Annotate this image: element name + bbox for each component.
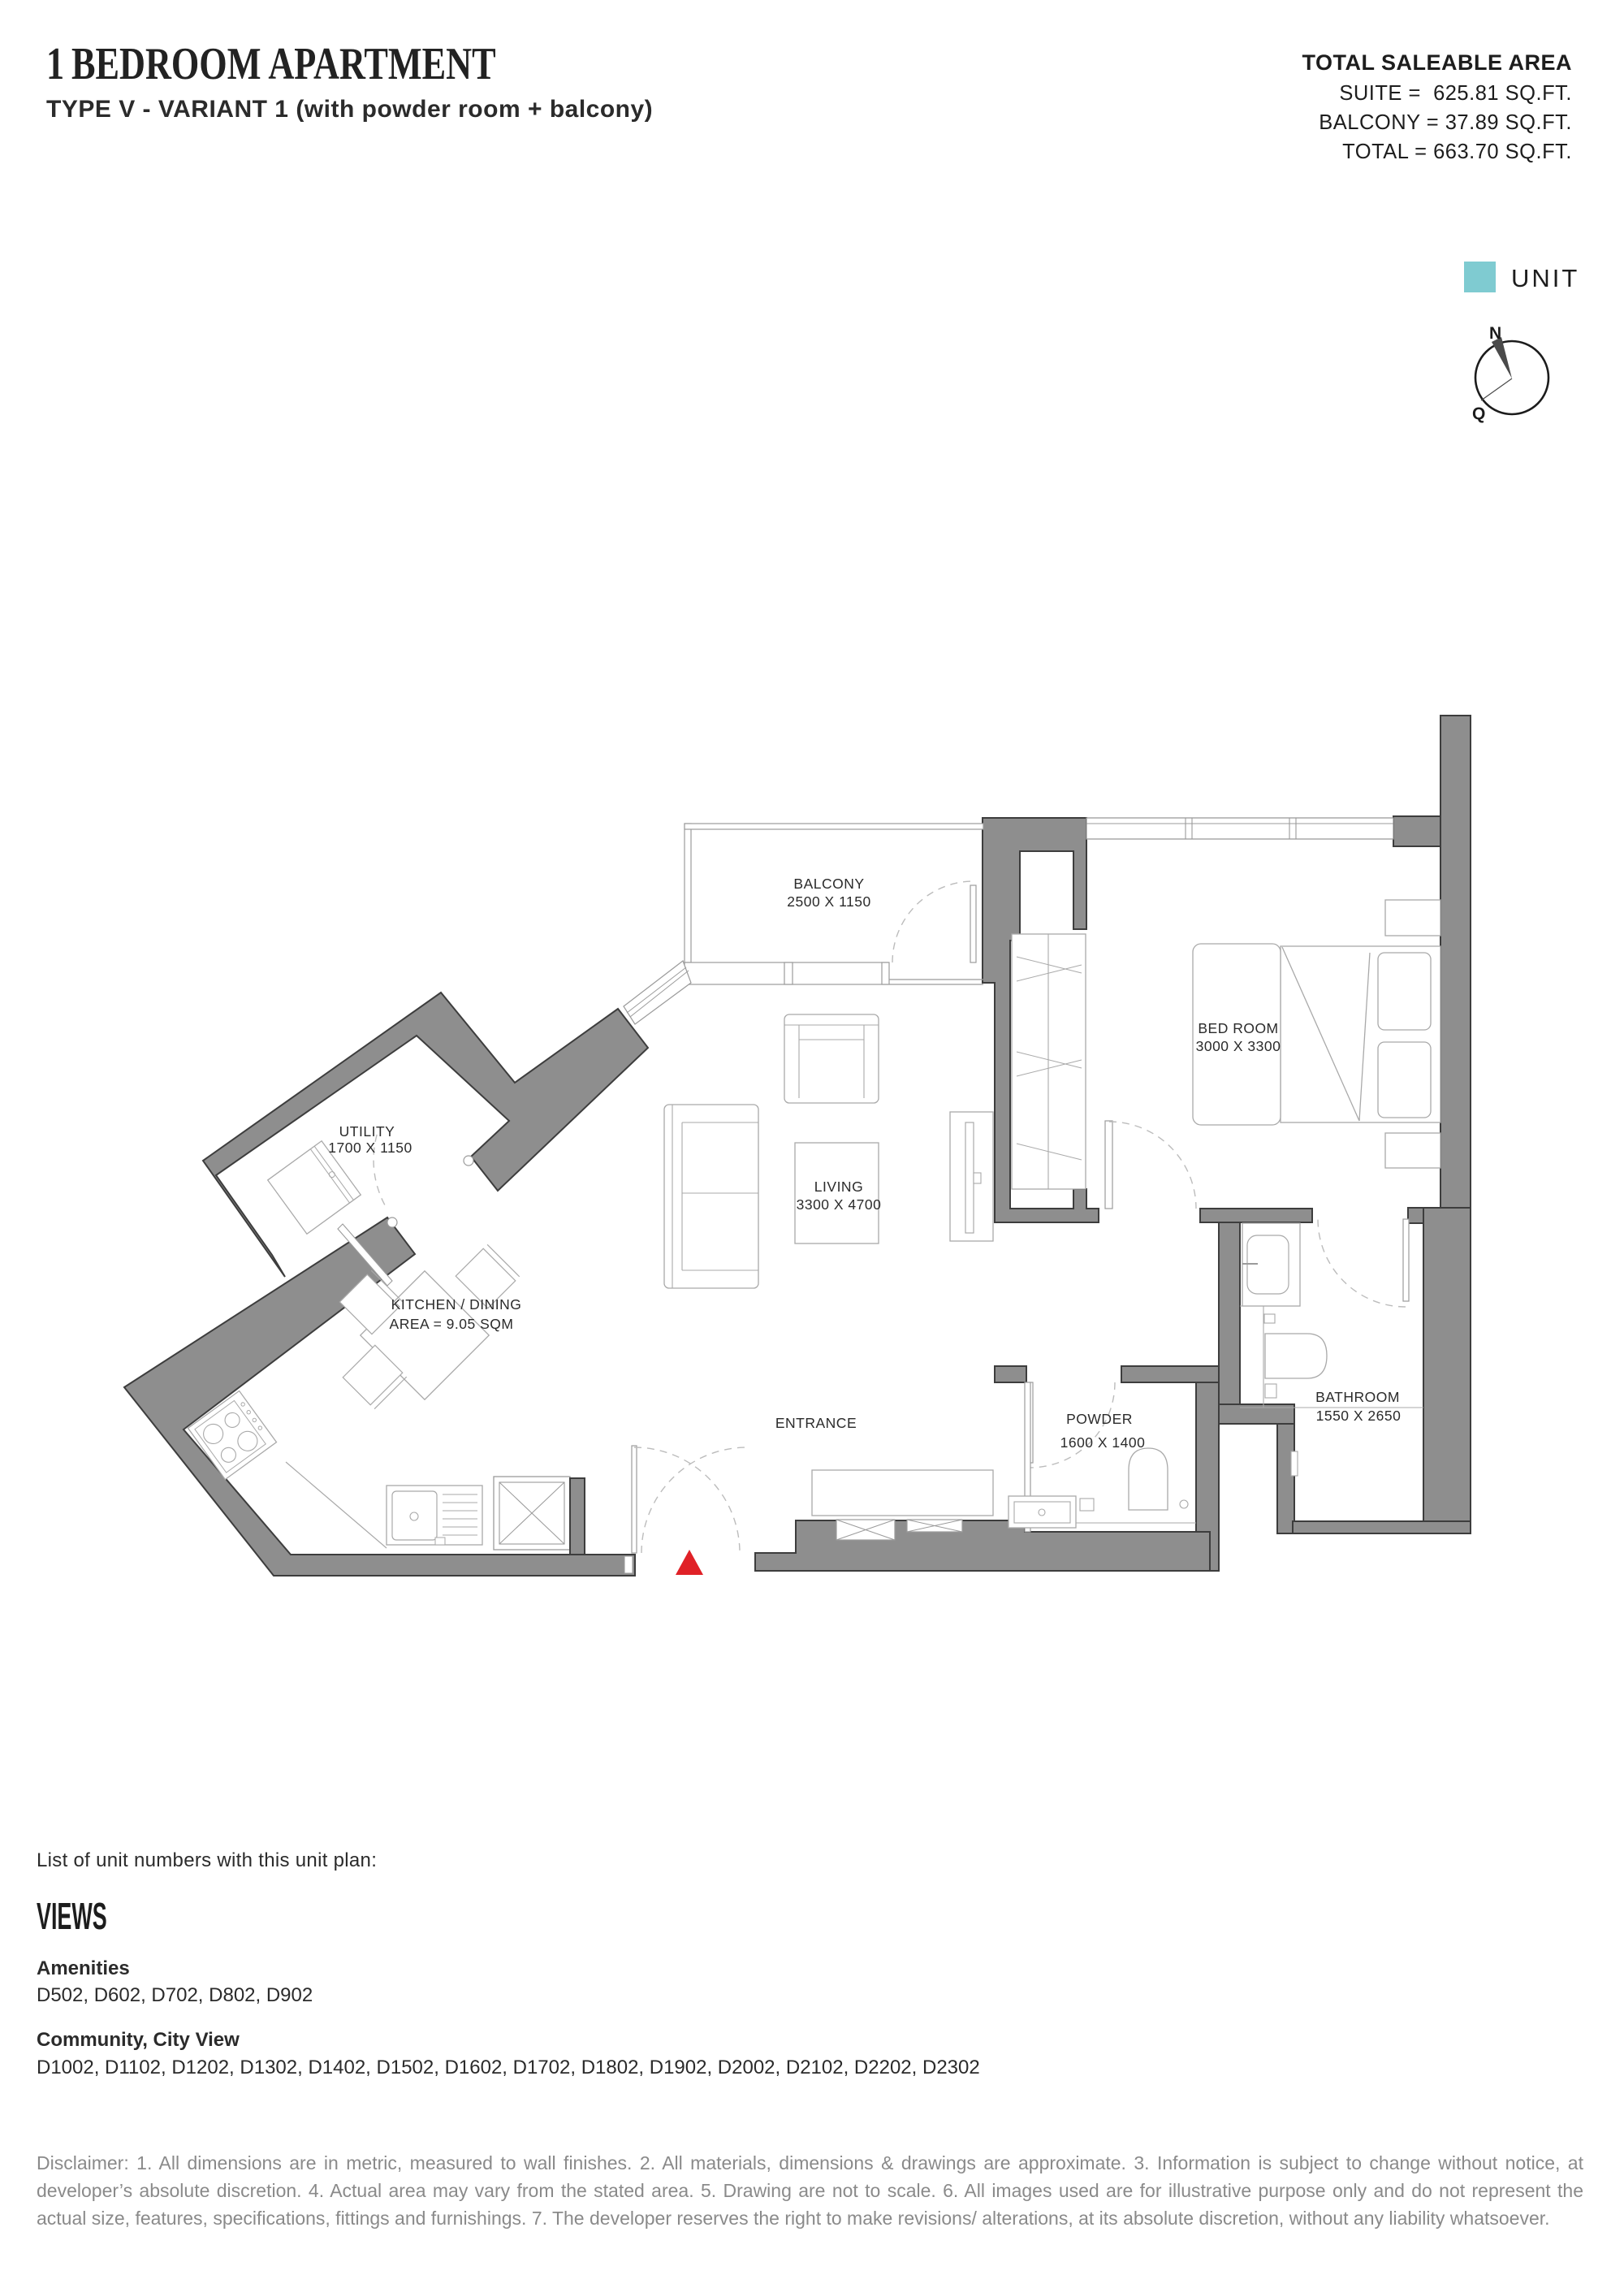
svg-text:BALCONY: BALCONY [793, 876, 864, 892]
svg-text:3000 X 3300: 3000 X 3300 [1196, 1038, 1281, 1054]
svg-text:KITCHEN / DINING: KITCHEN / DINING [391, 1296, 522, 1313]
svg-text:LIVING: LIVING [814, 1179, 863, 1195]
svg-text:2500 X 1150: 2500 X 1150 [787, 893, 870, 910]
svg-text:3300 X 4700: 3300 X 4700 [797, 1196, 882, 1213]
svg-text:BATHROOM: BATHROOM [1315, 1389, 1400, 1405]
svg-text:ENTRANCE: ENTRANCE [775, 1415, 857, 1431]
svg-text:1700 X 1150: 1700 X 1150 [328, 1140, 412, 1156]
svg-text:BED ROOM: BED ROOM [1198, 1020, 1278, 1036]
svg-text:1600 X 1400: 1600 X 1400 [1060, 1434, 1146, 1451]
svg-text:POWDER: POWDER [1066, 1411, 1133, 1427]
svg-text:AREA = 9.05 SQM: AREA = 9.05 SQM [390, 1316, 514, 1332]
svg-text:UTILITY: UTILITY [339, 1123, 395, 1140]
svg-text:1550 X 2650: 1550 X 2650 [1316, 1408, 1402, 1424]
